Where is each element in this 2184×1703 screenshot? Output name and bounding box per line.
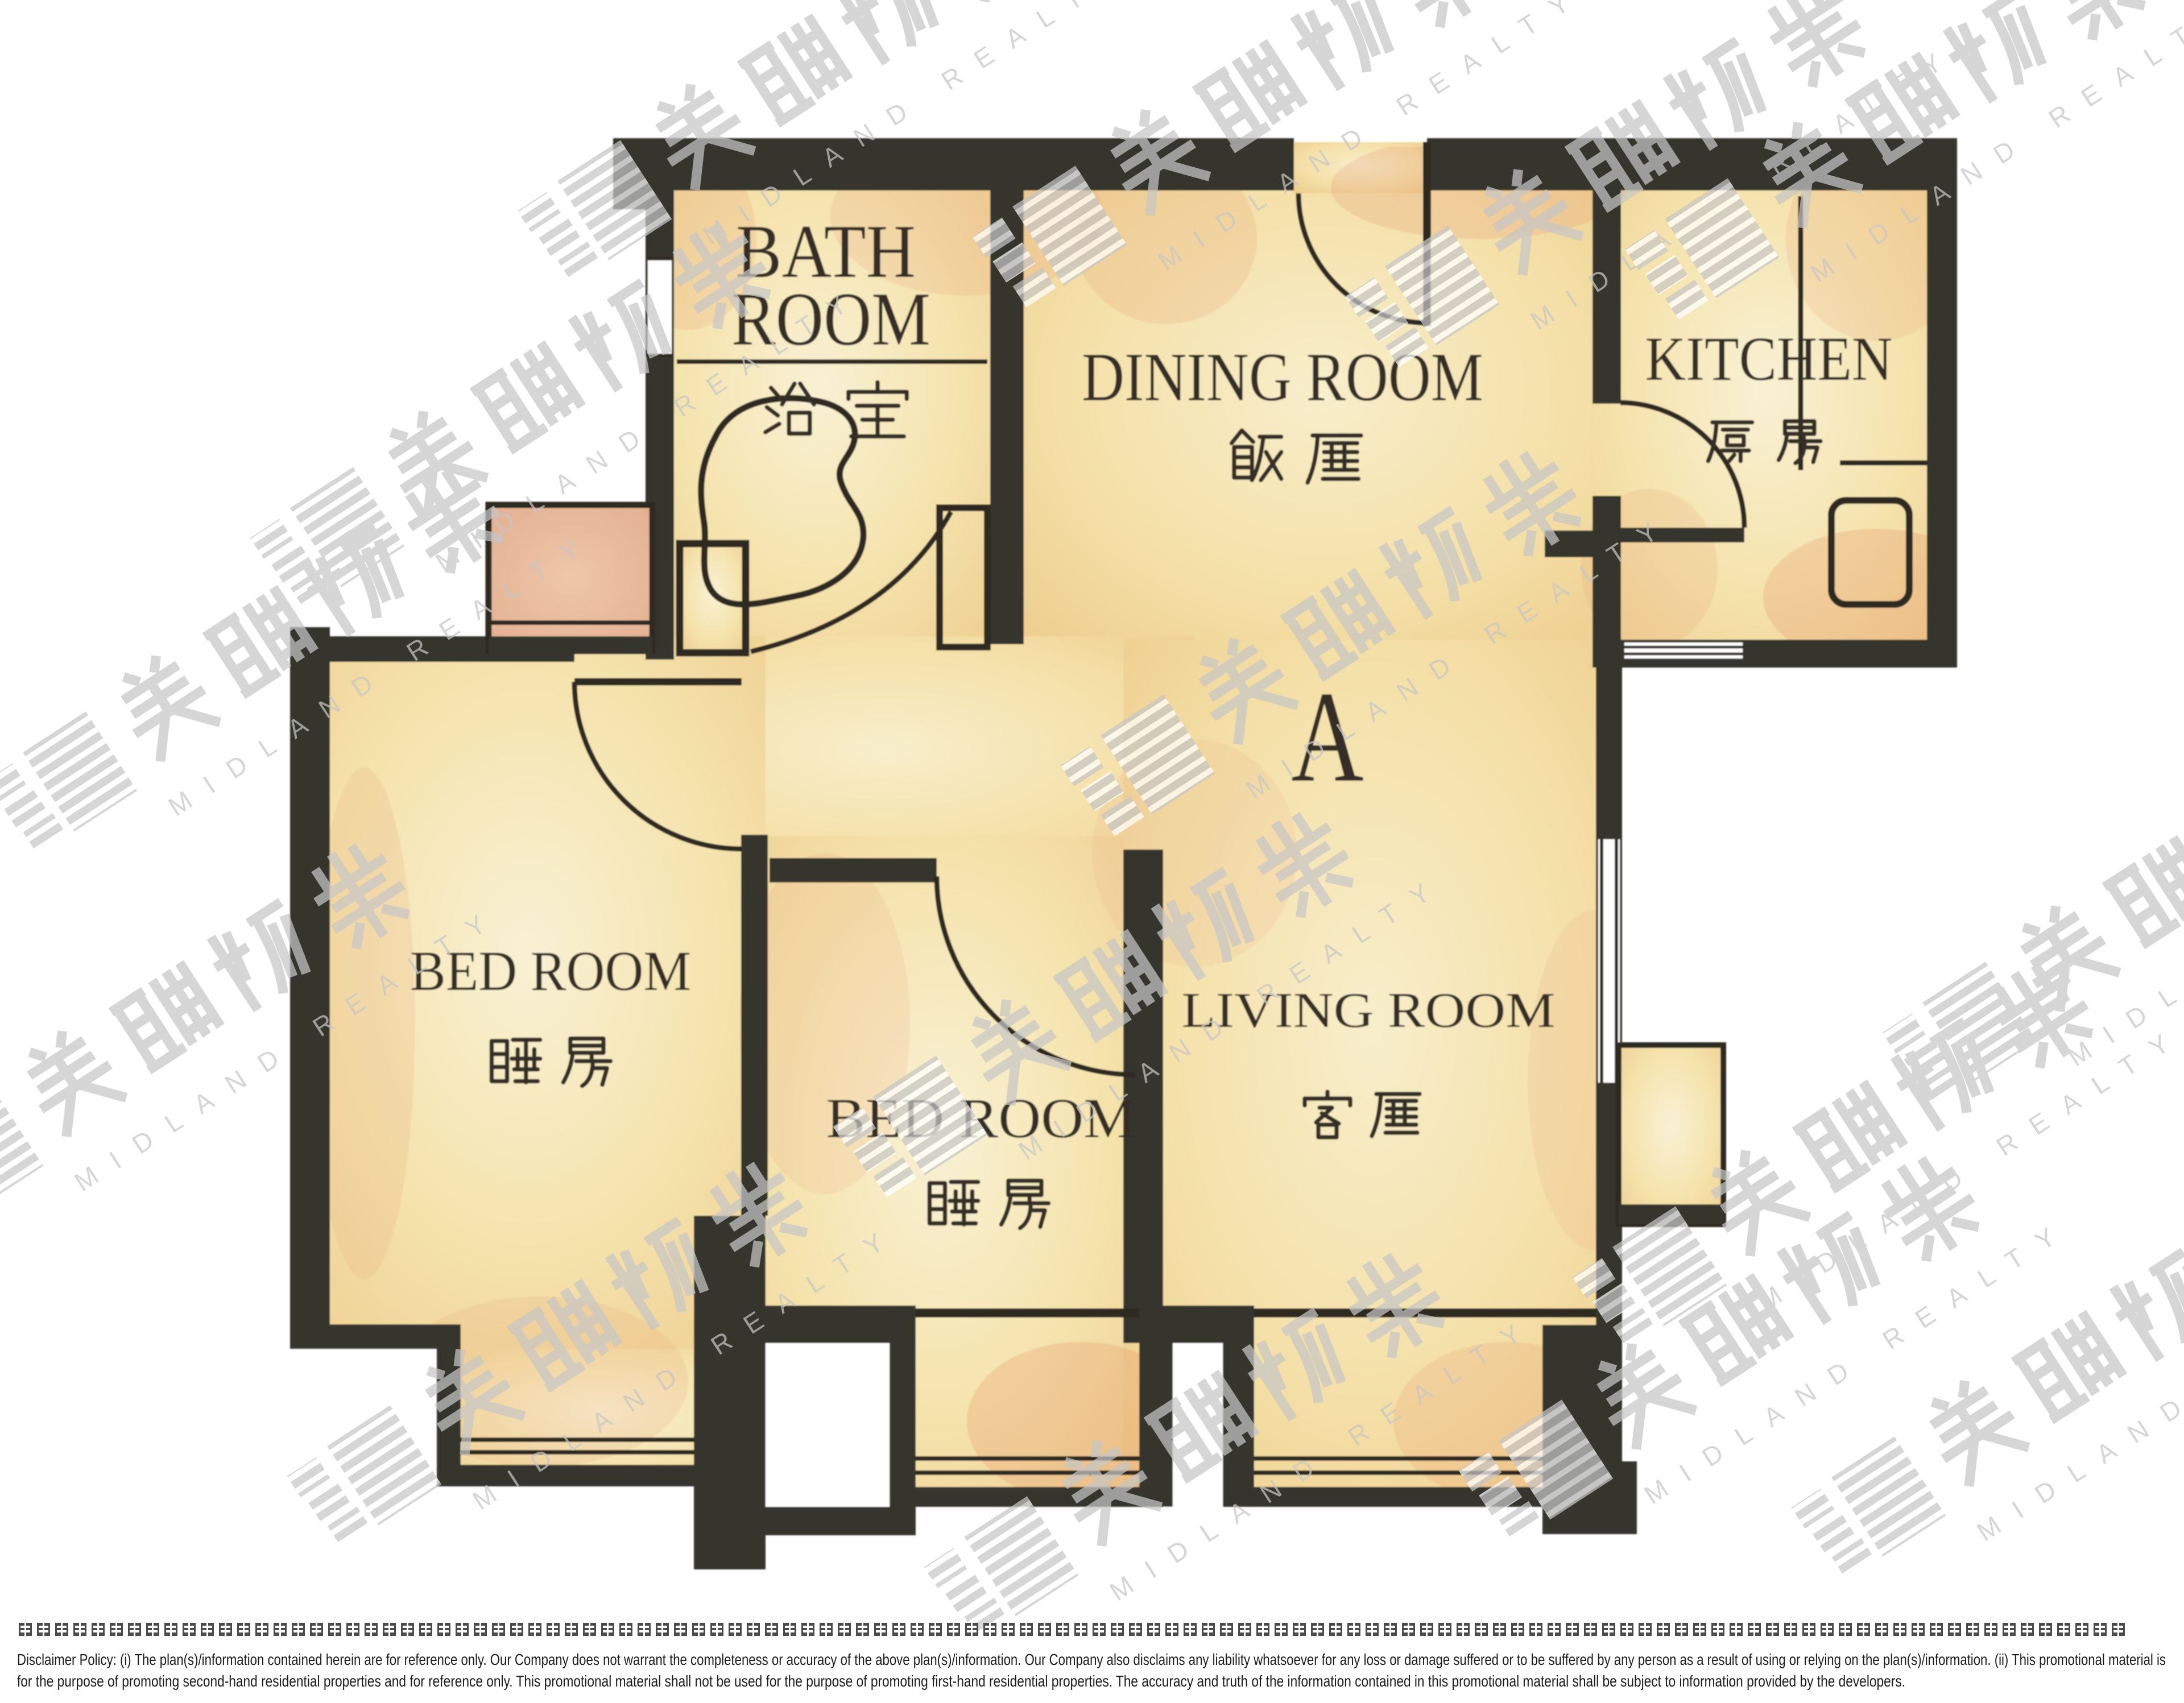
- svg-text:Disclaimer Policy: (i) The pla: Disclaimer Policy: (i) The plan(s)/infor…: [17, 1651, 2166, 1668]
- svg-text:for the purpose of promoting s: for the purpose of promoting second-hand…: [17, 1672, 1905, 1690]
- svg-text:KITCHEN: KITCHEN: [1645, 324, 1893, 393]
